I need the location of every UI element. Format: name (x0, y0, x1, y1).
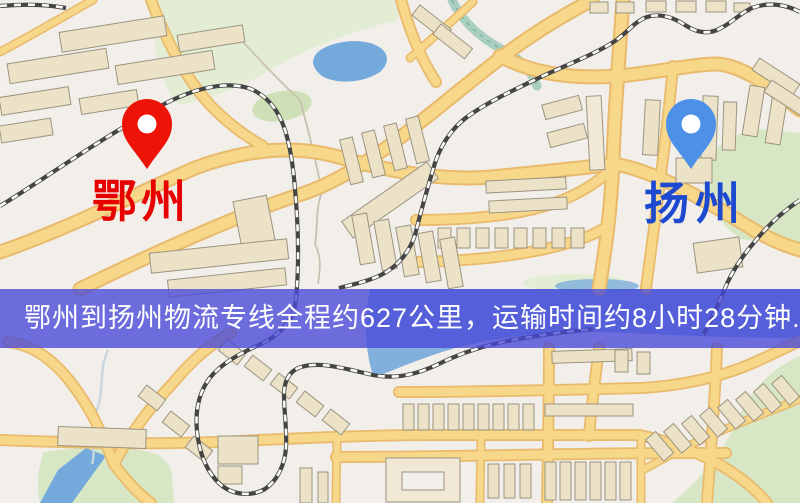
map-canvas: 鄂州到扬州物流专线全程约627公里，运输时间约8小时28分钟. 鄂州 扬州 (0, 0, 800, 503)
destination-city-label: 扬州 (644, 181, 746, 226)
map-image (0, 0, 800, 503)
origin-city-label: 鄂州 (92, 179, 190, 224)
route-info-text: 鄂州到扬州物流专线全程约627公里，运输时间约8小时28分钟. (24, 289, 800, 348)
route-info-banner: 鄂州到扬州物流专线全程约627公里，运输时间约8小时28分钟. (0, 289, 800, 348)
